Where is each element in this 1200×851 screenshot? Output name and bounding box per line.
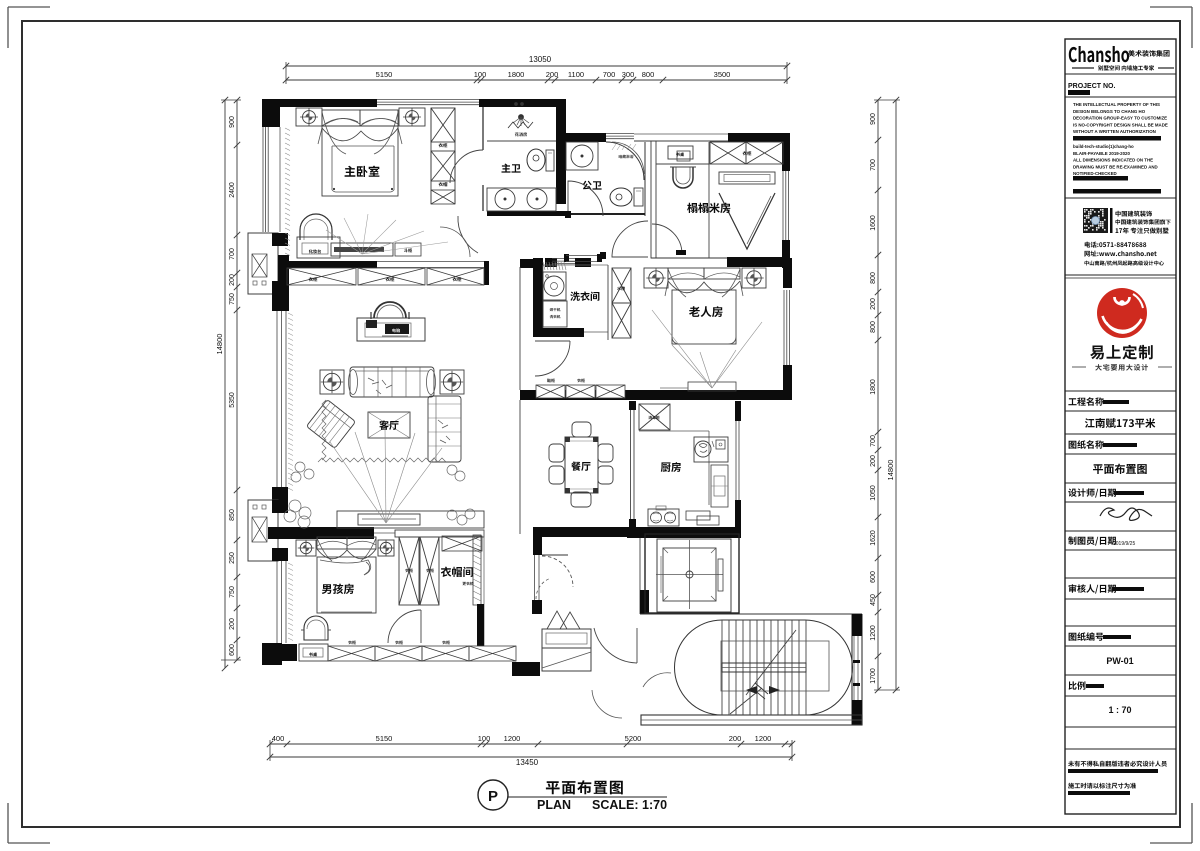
svg-text:PW-01: PW-01 [1106,656,1133,666]
svg-text:800: 800 [870,321,877,333]
svg-text:100: 100 [478,734,491,743]
svg-text:800: 800 [642,70,655,79]
svg-text:NOTIFIED-CHECKED: NOTIFIED-CHECKED [1073,171,1117,176]
svg-text:1600: 1600 [870,215,877,231]
svg-text:1200: 1200 [870,625,877,641]
svg-text:1800: 1800 [870,379,877,395]
svg-text:1200: 1200 [755,734,772,743]
svg-text:1620: 1620 [870,530,877,546]
svg-text:750: 750 [229,293,236,305]
svg-text:1050: 1050 [870,485,877,501]
svg-text:300: 300 [622,70,635,79]
svg-text:1800: 1800 [508,70,525,79]
svg-text:800: 800 [870,272,877,284]
svg-text:200: 200 [546,70,559,79]
svg-text:DECORATION GROUP-EASY TO CUSTO: DECORATION GROUP-EASY TO CUSTOMIZE [1073,116,1167,121]
svg-text:700: 700 [603,70,616,79]
svg-text:200: 200 [729,734,742,743]
svg-text:1100: 1100 [568,70,584,79]
svg-text:P: P [488,788,498,805]
svg-text:900: 900 [870,113,877,125]
svg-text:THE INTELLECTUAL PROPERTY OF T: THE INTELLECTUAL PROPERTY OF THIS [1073,102,1160,107]
svg-text:WITHOUT A WRITTEN AUTHORIZATIO: WITHOUT A WRITTEN AUTHORIZATION [1073,129,1156,134]
svg-text:PLAN: PLAN [537,798,571,812]
svg-text:14800: 14800 [886,460,895,481]
svg-text:400: 400 [272,734,285,743]
svg-text:1700: 1700 [870,668,877,684]
svg-text:700: 700 [870,159,877,171]
svg-text:14800: 14800 [215,334,224,355]
svg-text:3500: 3500 [714,70,731,79]
svg-text:200: 200 [870,298,877,310]
svg-text:13050: 13050 [529,55,552,64]
svg-text:PROJECT NO.: PROJECT NO. [1068,83,1116,90]
svg-text:build-tech-studio(1)chang-ho: build-tech-studio(1)chang-ho [1073,144,1134,149]
svg-text:100: 100 [474,70,487,79]
svg-text:SCALE: 1:70: SCALE: 1:70 [592,798,667,812]
svg-text:DRAWING MUST BE RE-EXAMINED AN: DRAWING MUST BE RE-EXAMINED AND [1073,164,1158,169]
svg-text:2019/9/25: 2019/9/25 [1113,541,1135,547]
svg-text:DESIGN BELONGS TO CHANG HO: DESIGN BELONGS TO CHANG HO [1073,109,1146,114]
svg-text:5150: 5150 [376,70,393,79]
svg-text:IS NO-COPYRIGHT DESIGN SHALL B: IS NO-COPYRIGHT DESIGN SHALL BE MADE [1073,122,1168,127]
svg-text:1 : 70: 1 : 70 [1108,705,1131,715]
svg-text:600: 600 [870,571,877,583]
svg-text:13450: 13450 [516,758,539,767]
svg-text:700: 700 [229,248,236,260]
svg-text:900: 900 [229,116,236,128]
svg-text:750: 750 [229,586,236,598]
svg-text:5350: 5350 [229,392,236,408]
svg-text:ALL DIMENSIONS INDICATED ON T: ALL DIMENSIONS INDICATED ON THE [1073,158,1153,163]
svg-text:200: 200 [229,274,236,286]
svg-text:5200: 5200 [625,734,642,743]
svg-text:BLAIR-PAYABLE 2019-2020: BLAIR-PAYABLE 2019-2020 [1073,151,1130,156]
svg-text:1200: 1200 [504,734,521,743]
svg-text:250: 250 [229,552,236,564]
svg-text:450: 450 [870,594,877,606]
svg-text:200: 200 [229,618,236,630]
svg-text:850: 850 [229,509,236,521]
svg-text:5150: 5150 [376,734,393,743]
svg-text:700: 700 [870,435,877,447]
svg-text:600: 600 [229,644,236,656]
svg-text:200: 200 [870,455,877,467]
svg-text:2400: 2400 [229,182,236,198]
